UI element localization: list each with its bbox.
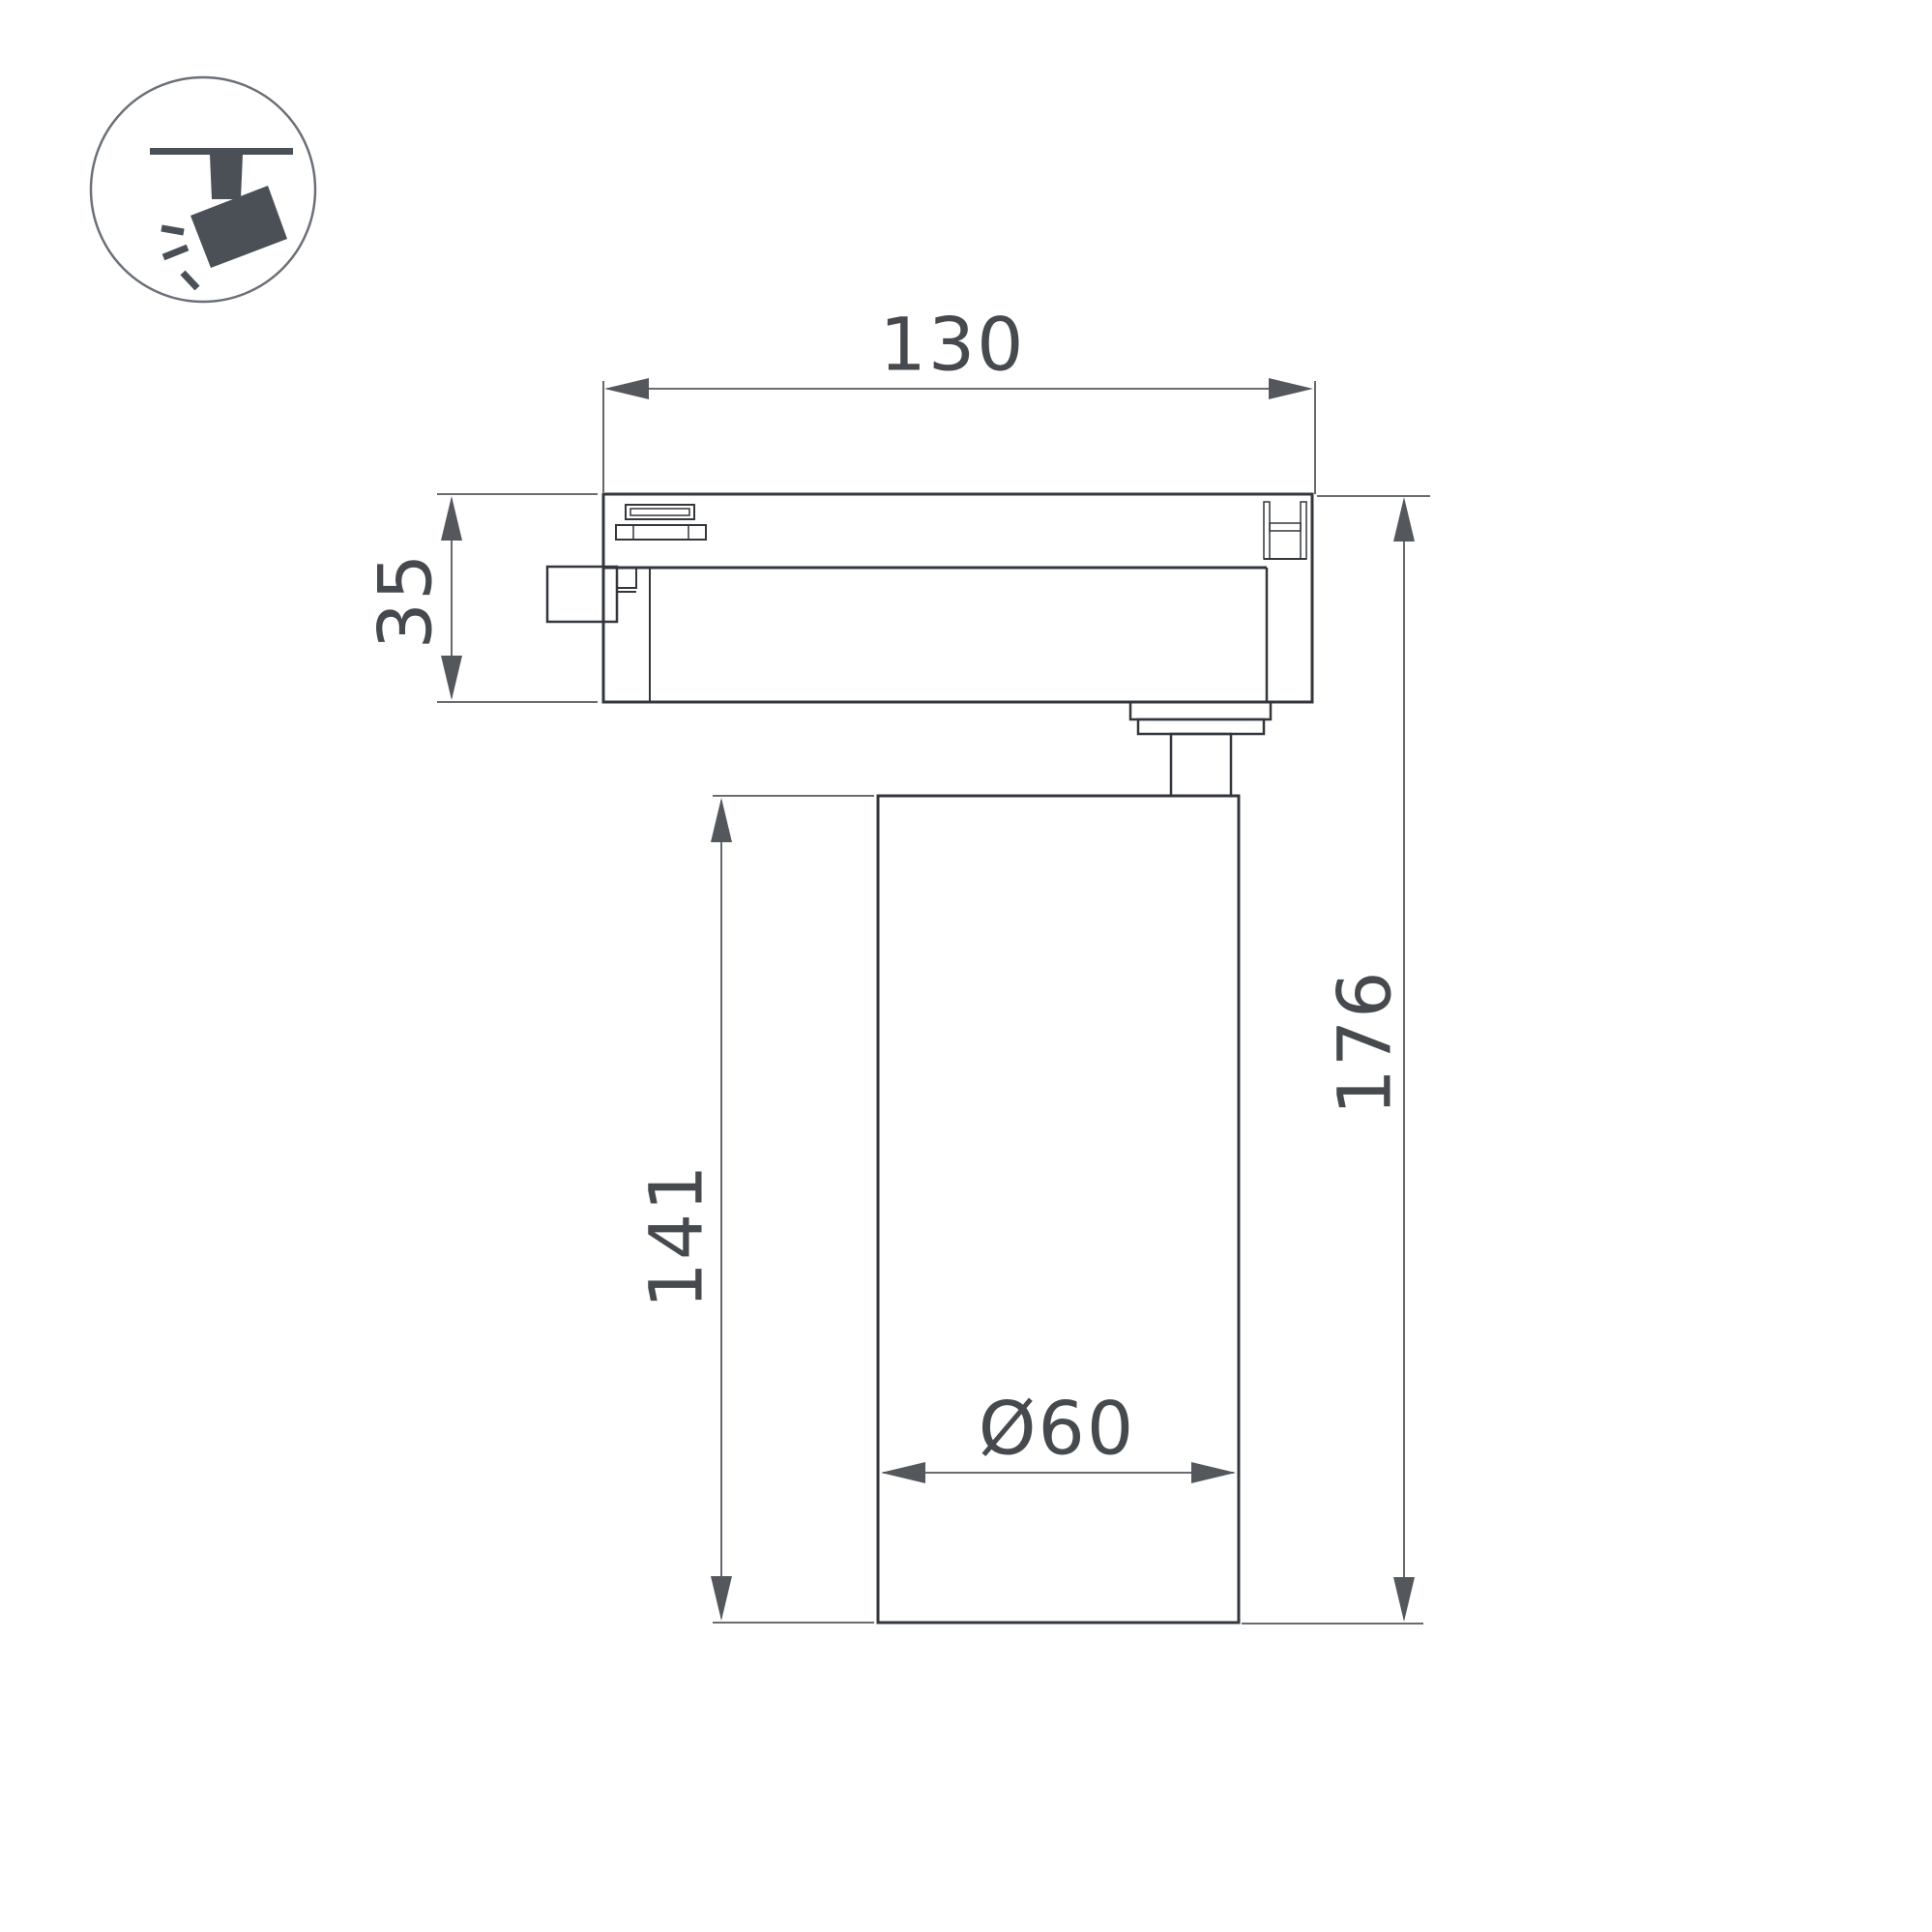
dim-label-adapter-height: 35 (363, 552, 449, 650)
spot-head (190, 186, 287, 268)
dimension-adapter-height: 35 (363, 494, 599, 702)
dim-label-track-width: 130 (879, 302, 1025, 388)
dimension-body-height: 141 (633, 796, 875, 1623)
arrowhead-down (441, 656, 462, 700)
track-ceiling-bar (150, 148, 293, 155)
light-ray-icon (163, 248, 188, 257)
light-ray-icon (183, 273, 197, 288)
neck-flange-upper (1130, 702, 1271, 719)
neck-flange-lower (1138, 719, 1264, 734)
dim-label-body-diameter: Ø60 (979, 1386, 1136, 1472)
track-spotlight-icon (91, 77, 315, 302)
track-stem (210, 155, 243, 199)
mount-neck (1130, 702, 1271, 796)
dim-label-overall-height: 176 (1322, 969, 1408, 1115)
dimension-body-diameter: Ø60 (881, 1386, 1236, 1484)
latch-step (617, 568, 636, 588)
technical-drawing-page: 130 35 141 176 (0, 0, 1932, 1932)
dim-label-body-height: 141 (633, 1162, 719, 1308)
contact-clip-outer (626, 505, 694, 519)
arrowhead-down (1393, 1577, 1415, 1622)
arrowhead-up (711, 798, 732, 842)
contact-slide (616, 525, 706, 540)
dimension-drawing: 130 35 141 176 (0, 0, 1932, 1932)
side-latch (547, 567, 617, 622)
light-ray-icon (161, 228, 184, 232)
icon-circle (91, 77, 315, 302)
arrowhead-down (711, 1576, 732, 1621)
dimension-track-width: 130 (603, 302, 1315, 495)
lamp-body (878, 796, 1239, 1623)
arrowhead-left (604, 378, 649, 399)
contact-clip-inner (630, 509, 689, 515)
right-clip (1264, 502, 1306, 559)
neck-stem (1171, 734, 1231, 796)
track-adapter-body (547, 494, 1312, 702)
arrowhead-right (1191, 1462, 1236, 1483)
arrowhead-right (1269, 378, 1313, 399)
dimension-overall-height: 176 (1242, 496, 1430, 1624)
adapter-outline (603, 494, 1312, 702)
arrowhead-up (1393, 497, 1415, 542)
arrowhead-up (441, 496, 462, 541)
arrowhead-left (881, 1462, 925, 1483)
